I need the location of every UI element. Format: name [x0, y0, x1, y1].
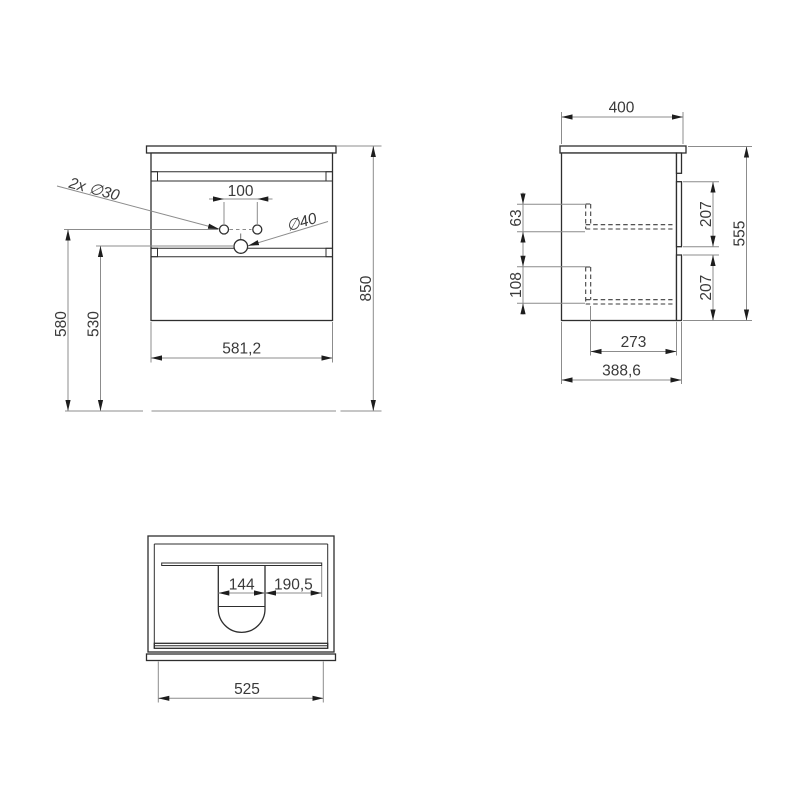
- dim-depth: 400: [562, 100, 684, 145]
- top-view: 144 190,5 525: [147, 536, 336, 703]
- top-outer-body: [148, 536, 334, 652]
- dim-body-depth: 388,6: [562, 322, 682, 384]
- dim-inner-width: 525: [158, 662, 323, 703]
- label-basin-offset: 190,5: [274, 577, 313, 594]
- side-countertop: [560, 146, 686, 153]
- label-basin-width: 144: [229, 577, 255, 594]
- label-body-depth: 388,6: [602, 363, 641, 380]
- dim-front-panel-upper: 207: [683, 182, 719, 247]
- label-cabinet-width: 581,2: [222, 341, 261, 358]
- side-view: 400 555 207 207: [508, 100, 752, 385]
- label-inner-width: 525: [234, 681, 260, 698]
- dim-cabinet-width: 581,2: [151, 322, 333, 363]
- front-cabinet-body: [151, 153, 333, 321]
- faucet-hole-right: [253, 225, 262, 234]
- label-body-height: 555: [732, 221, 749, 247]
- technical-drawing-page: 100 2x ∅30 ∅40 580 530 850: [0, 0, 800, 800]
- label-depth: 400: [609, 100, 635, 117]
- front-countertop: [147, 146, 337, 153]
- dim-total-height: 850: [358, 146, 375, 411]
- top-front-edge: [147, 654, 336, 661]
- label-offset-upper: 63: [508, 209, 525, 226]
- drain-hole: [234, 240, 248, 254]
- dim-body-height: 555: [683, 147, 752, 321]
- label-faucet-height: 580: [53, 311, 70, 337]
- label-drain-height: 530: [86, 311, 103, 337]
- label-total-height: 850: [358, 275, 375, 301]
- front-view: 100 2x ∅30 ∅40 580 530 850: [53, 146, 382, 411]
- label-inner-depth: 273: [621, 334, 647, 351]
- label-hole-spacing: 100: [228, 183, 254, 200]
- label-faucet-holes: 2x ∅30: [66, 175, 121, 205]
- label-front-panel-upper: 207: [698, 201, 715, 227]
- vanity-cabinet-drawing: 100 2x ∅30 ∅40 580 530 850: [0, 0, 800, 800]
- dim-drain-height: 530: [86, 246, 103, 411]
- label-offset-lower: 108: [508, 272, 525, 298]
- side-carcass: [562, 153, 677, 321]
- label-front-panel-lower: 207: [698, 275, 715, 301]
- faucet-hole-left: [220, 225, 229, 234]
- dim-faucet-height: 580: [53, 230, 70, 412]
- side-front-panels: [677, 153, 682, 321]
- dim-front-panel-lower: 207: [683, 255, 719, 321]
